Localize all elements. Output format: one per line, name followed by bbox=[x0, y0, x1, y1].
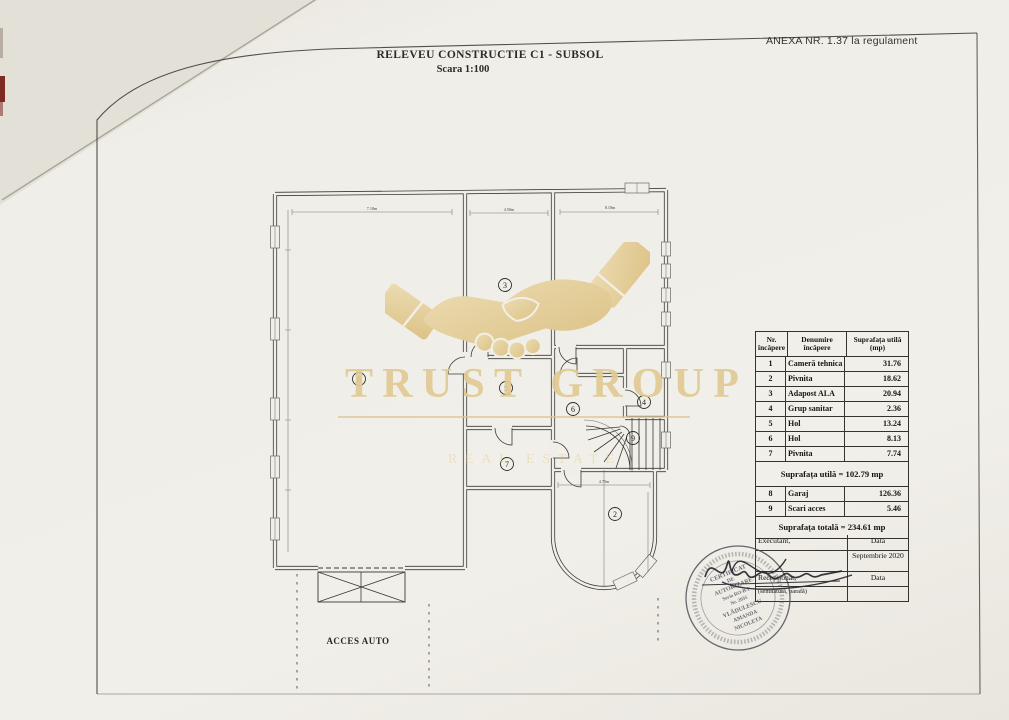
watermark-underline bbox=[338, 416, 690, 418]
room-label: 2 bbox=[613, 510, 617, 519]
svg-text:4.75m: 4.75m bbox=[599, 479, 610, 484]
table-row: 8 Garaj 126.36 bbox=[756, 486, 908, 501]
access-auto-label: ACCES AUTO bbox=[326, 636, 389, 646]
page-title: RELEVEU CONSTRUCTIE C1 - SUBSOL bbox=[330, 49, 650, 61]
watermark-sub-text: REAL ESTATE bbox=[448, 452, 622, 468]
table-row: 6 Hol 8.13 bbox=[756, 431, 908, 446]
watermark-brand-text: TRUST GROUP bbox=[345, 360, 748, 408]
signature-scrawl bbox=[690, 525, 910, 615]
scan-edge-mark bbox=[0, 76, 5, 102]
table-row: 7 Pivnita 7.74 bbox=[756, 446, 908, 461]
area-table-header: Nr. încăpere Denumire încăpere Suprafața… bbox=[756, 332, 908, 356]
scanned-document-page: { "document": { "annex_note": "ANEXA NR.… bbox=[0, 0, 1009, 720]
svg-text:8.10m: 8.10m bbox=[605, 205, 616, 210]
svg-text:7.10m: 7.10m bbox=[367, 206, 378, 211]
area-table: Nr. încăpere Denumire încăpere Suprafața… bbox=[755, 331, 909, 539]
svg-text:4.50m: 4.50m bbox=[504, 207, 515, 212]
table-row: 4 Grup sanitar 2.36 bbox=[756, 401, 908, 416]
table-row: 1 Cameră tehnica 31.76 bbox=[756, 356, 908, 371]
annex-note: ANEXA NR. 1.37 la regulament bbox=[766, 35, 918, 47]
access-ramp bbox=[318, 568, 405, 602]
property-dashed-lines bbox=[297, 574, 658, 690]
table-row: 3 Adapost ALA 20.94 bbox=[756, 386, 908, 401]
page-scale: Scara 1:100 bbox=[330, 64, 596, 75]
subtotal-text: Suprafața utilă = 102.79 mp bbox=[756, 461, 908, 486]
table-row: 2 Pivnita 18.62 bbox=[756, 371, 908, 386]
table-row: 9 Scari acces 5.46 bbox=[756, 501, 908, 516]
table-row: 5 Hol 13.24 bbox=[756, 416, 908, 431]
room-label: 9 bbox=[631, 434, 635, 443]
col-header-nr: Nr. încăpere bbox=[756, 332, 788, 356]
col-header-area: Suprafața utilă (mp) bbox=[847, 332, 908, 356]
handshake-watermark-icon bbox=[385, 242, 650, 377]
col-header-name: Denumire încăpere bbox=[788, 332, 847, 356]
